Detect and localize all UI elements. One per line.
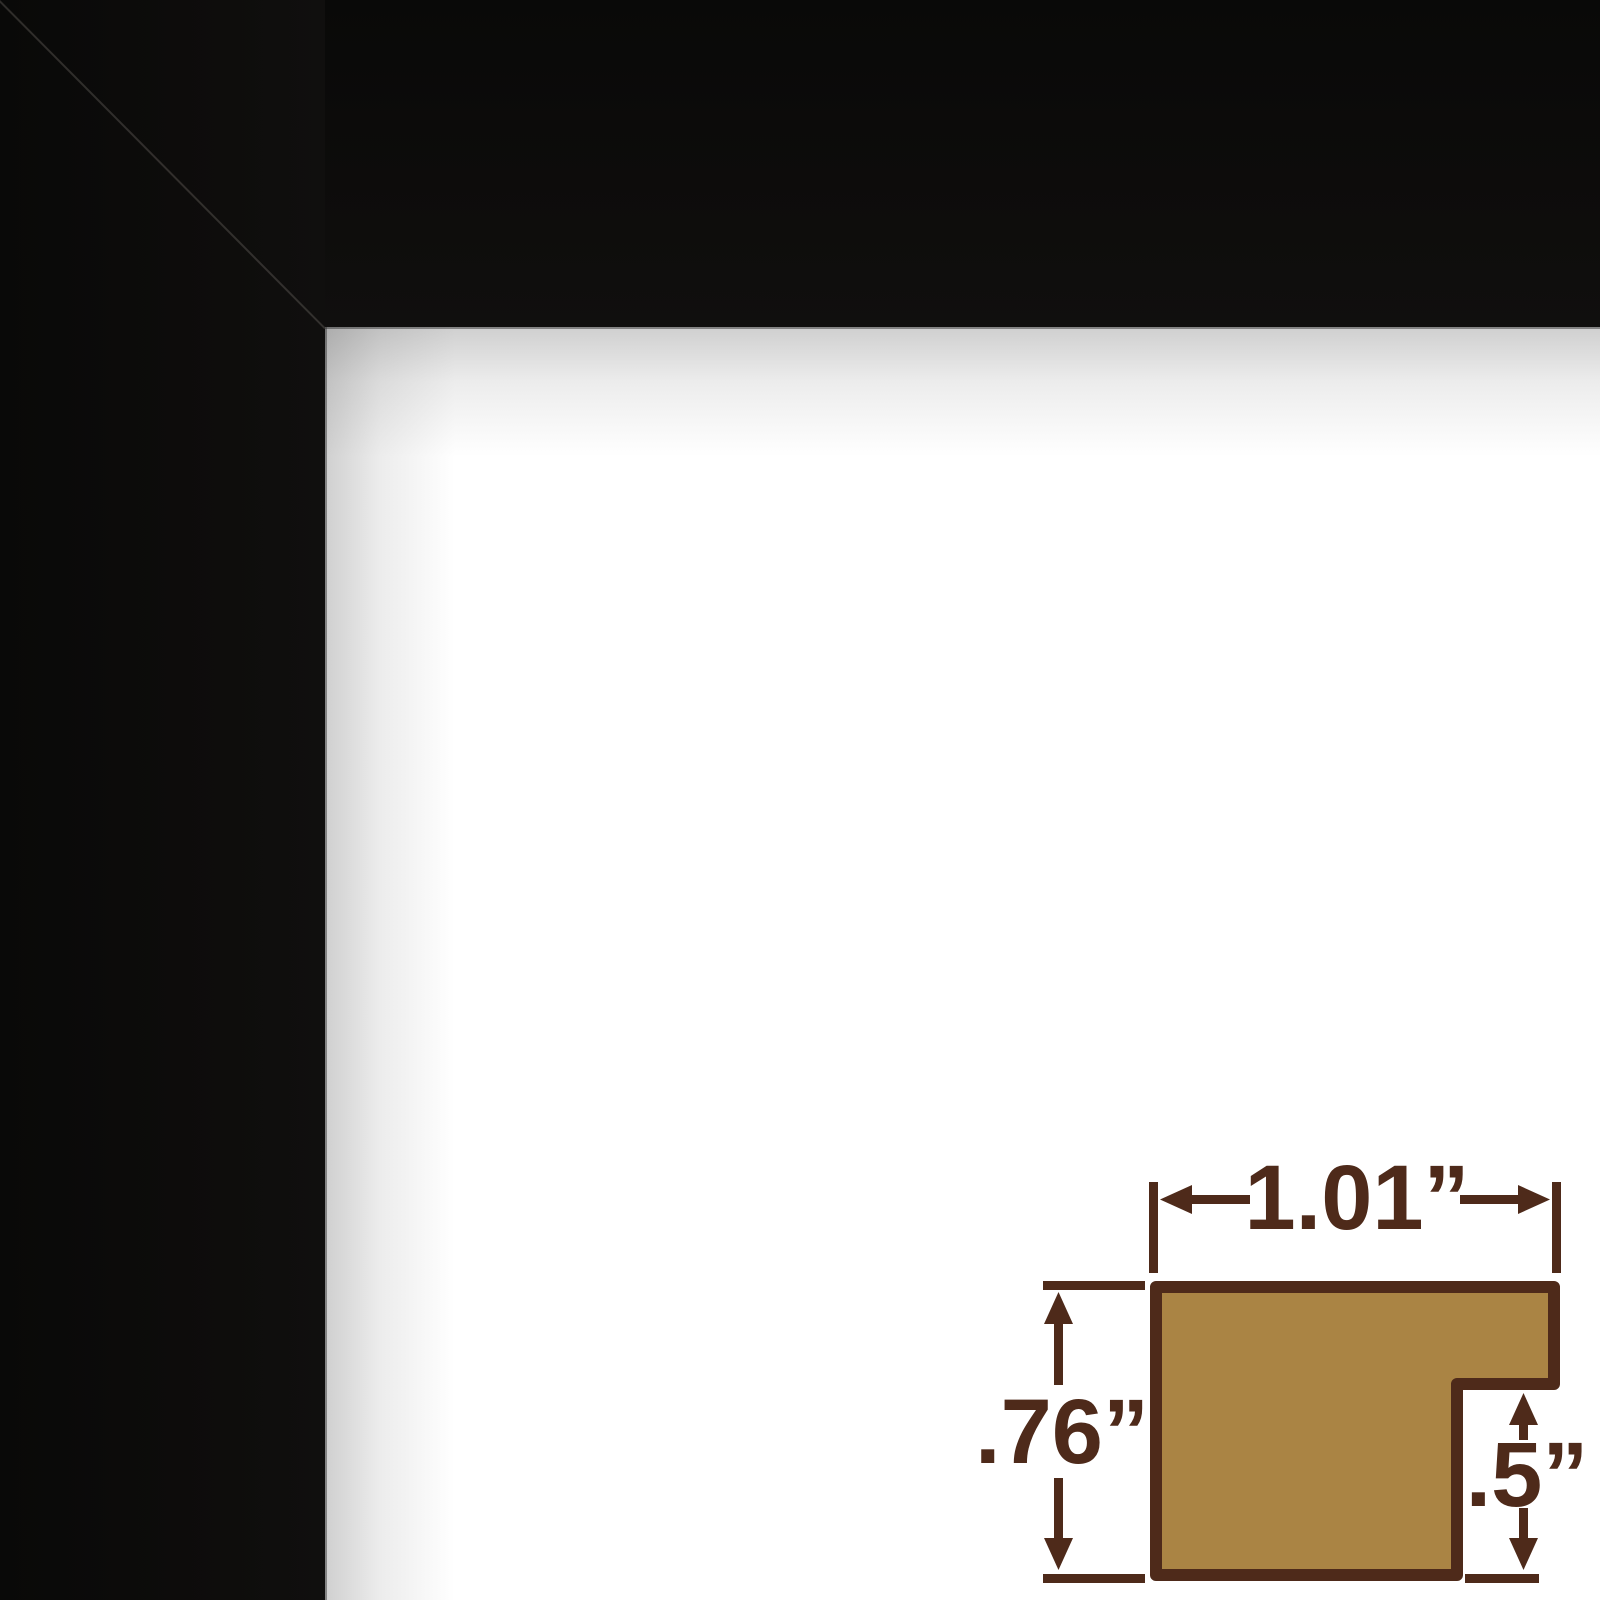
height-arrow-down-shaft [1054,1478,1063,1540]
height-arrow-up-shaft [1054,1320,1063,1385]
height-arrow-down-head [1044,1538,1073,1570]
width-arrow-right-head [1518,1185,1550,1214]
height-tick-top [1043,1281,1145,1290]
rabbet-dimension-label: .5” [1466,1424,1589,1526]
height-dimension-label: .76” [975,1381,1149,1483]
rabbet-arrow-down-head [1509,1538,1538,1570]
width-tick-right [1552,1182,1561,1273]
product-image: 1.01” .76” .5” [0,0,1600,1600]
rabbet-dimension: .5” [1465,1393,1588,1583]
frame-left-rail [0,0,325,1600]
height-dimension: .76” [975,1281,1149,1583]
width-arrow-left-head [1160,1185,1192,1214]
width-dimension: 1.01” [1149,1147,1561,1273]
rabbet-arrow-up-head [1509,1393,1538,1425]
height-arrow-up-head [1044,1292,1073,1324]
width-tick-left [1149,1182,1158,1273]
rabbet-tick-bottom [1465,1574,1539,1583]
width-arrow-left-shaft [1188,1195,1250,1204]
moulding-cross-section-diagram: 1.01” .76” .5” [940,1130,1600,1600]
height-tick-bottom [1043,1574,1145,1583]
width-dimension-label: 1.01” [1244,1147,1469,1249]
